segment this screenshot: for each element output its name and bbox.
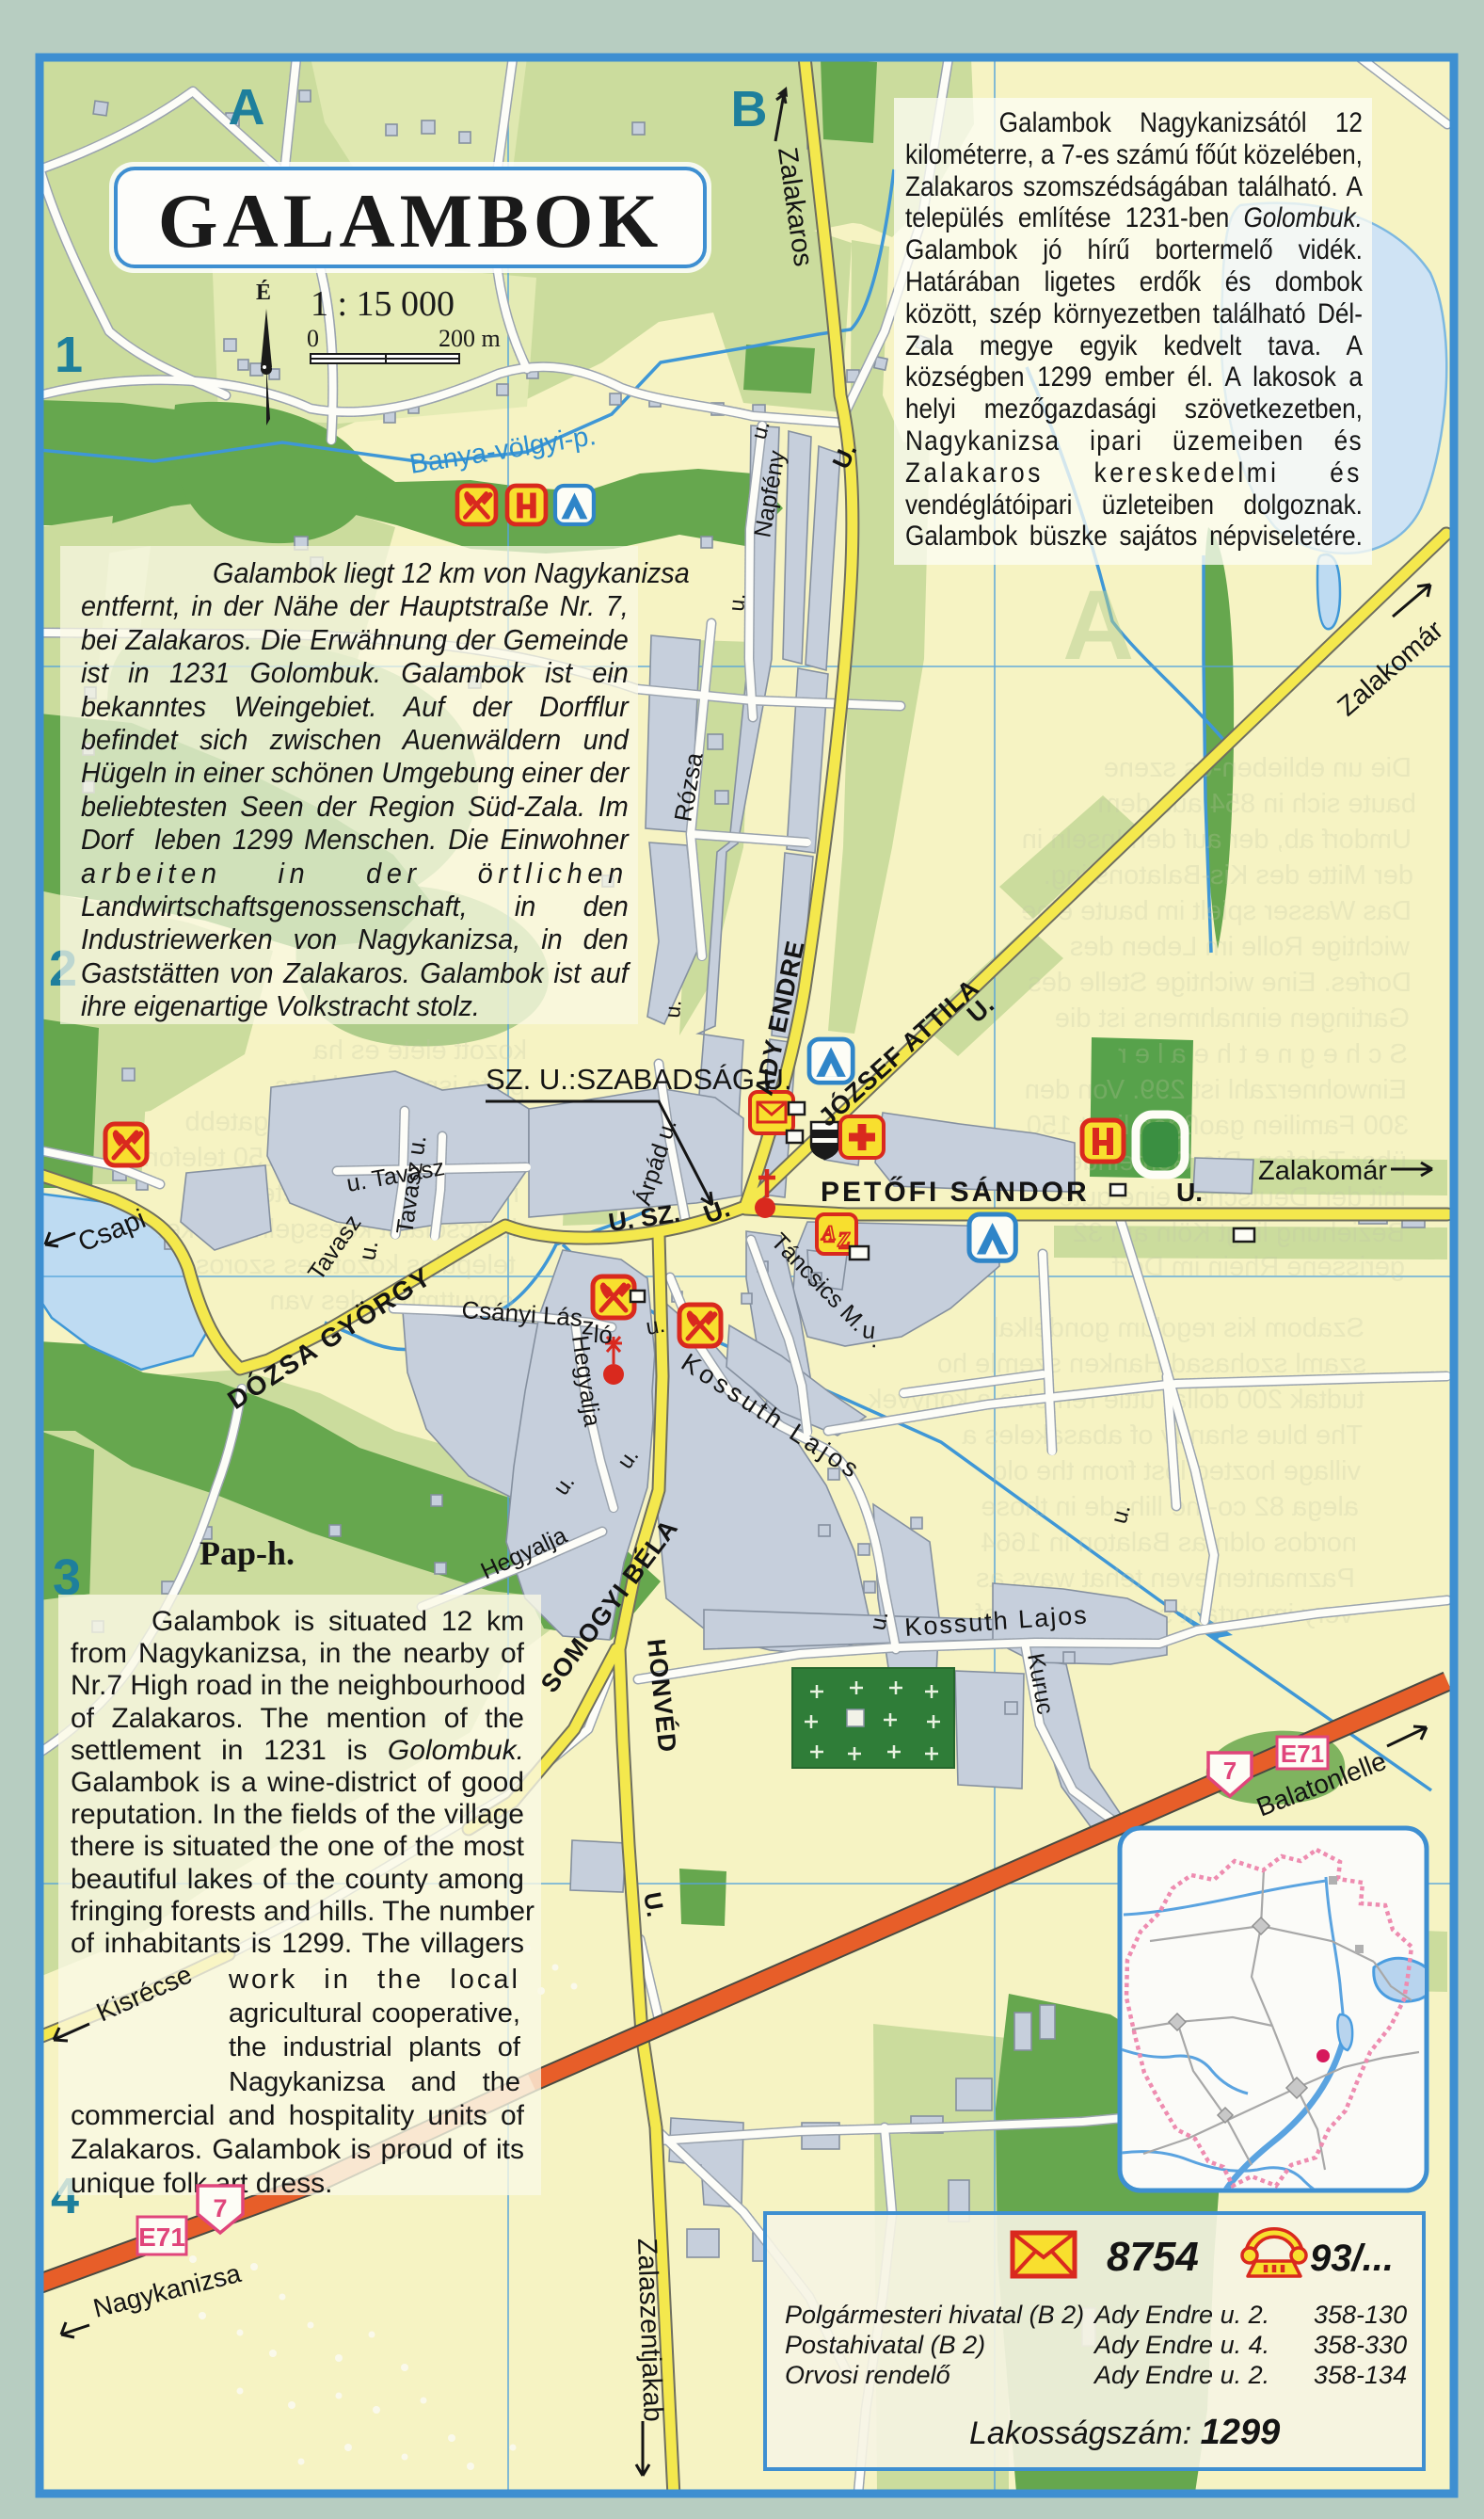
svg-text:7: 7 [1223, 1757, 1237, 1785]
svg-text:PETŐFI SÁNDOR: PETŐFI SÁNDOR [821, 1176, 1090, 1208]
svg-text:Umdorf ab, der auf den Inseln: Umdorf ab, der auf den Inseln in [1022, 825, 1412, 855]
svg-text:358-330: 358-330 [1314, 2331, 1407, 2359]
svg-text:0: 0 [307, 325, 319, 352]
svg-text:8754: 8754 [1107, 2234, 1199, 2280]
svg-text:Ady Endre u. 2.: Ady Endre u. 2. [1093, 2361, 1269, 2389]
svg-text:kozott elete es ha: kozott elete es ha [312, 1035, 527, 1066]
svg-text:u.: u. [660, 999, 686, 1019]
svg-text:1 : 15 000: 1 : 15 000 [311, 284, 455, 324]
svg-text:Dorfes. Eine wichtige Stelle d: Dorfes. Eine wichtige Stelle des [1028, 968, 1412, 998]
svg-text:358-134: 358-134 [1314, 2361, 1407, 2389]
svg-text:The blue shandy of abasakeles: The blue shandy of abasakeles a [962, 1420, 1363, 1451]
svg-text:A: A [1062, 570, 1134, 681]
svg-text:Zalakomár: Zalakomár [1258, 1156, 1387, 1186]
svg-text:358-130: 358-130 [1314, 2301, 1407, 2329]
svg-text:Pap-h.: Pap-h. [199, 1534, 295, 1572]
svg-text:S c h e g n e t h e a l e r: S c h e g n e t h e a l e r [1118, 1039, 1408, 1069]
svg-text:Die un eblieben-ös szene: Die un eblieben-ös szene [1104, 753, 1412, 783]
svg-text:GALAMBOK: GALAMBOK [158, 178, 663, 264]
svg-text:Ady Endre u. 4.: Ady Endre u. 4. [1093, 2331, 1269, 2359]
svg-text:U.: U. [638, 1890, 670, 1919]
svg-text:B: B [731, 81, 768, 137]
svg-text:Postahivatal (B 2): Postahivatal (B 2) [785, 2331, 985, 2359]
svg-text:1: 1 [55, 327, 83, 383]
svg-text:Gartingen einnahmens ist die: Gartingen einnahmens ist die [1055, 1003, 1410, 1034]
svg-text:alega 82 co-the llihade in tho: alega 82 co-the llihade in those [981, 1492, 1359, 1522]
svg-text:gerissene Rhein im Dorf: gerissene Rhein im Dorf [1111, 1252, 1405, 1282]
svg-text:É: É [256, 281, 271, 305]
svg-text:Ady Endre u. 2.: Ady Endre u. 2. [1093, 2301, 1269, 2329]
svg-text:u.: u. [724, 592, 750, 612]
svg-text:Zalaszentjakab: Zalaszentjakab [631, 2238, 668, 2422]
svg-text:93/...: 93/... [1310, 2238, 1394, 2279]
svg-text:Lakosságszám: 1299: Lakosságszám: 1299 [969, 2413, 1280, 2452]
svg-text:szaml szohasad Hanken szemle h: szaml szohasad Hanken szemle ho [937, 1349, 1366, 1379]
svg-text:Orvosi rendelő: Orvosi rendelő [785, 2361, 951, 2389]
svg-text:SZ. U.:SZABADSÁG U.: SZ. U.:SZABADSÁG U. [486, 1063, 792, 1096]
svg-text:nordos oldmas Balaton in 1664: nordos oldmas Balaton in 1664 [981, 1528, 1357, 1558]
svg-text:E71: E71 [1281, 1740, 1324, 1768]
svg-text:A: A [229, 79, 265, 136]
svg-text:Das Wasser spielt im baute ein: Das Wasser spielt im baute eine [1021, 896, 1412, 926]
svg-text:Polgármesteri hivatal (B 2): Polgármesteri hivatal (B 2) [785, 2301, 1084, 2329]
svg-text:wichtige Rolle im Leben des: wichtige Rolle im Leben des [1070, 932, 1411, 962]
svg-text:Einwohnerzahl ist 299. Von den: Einwohnerzahl ist 299. Von den [1025, 1075, 1407, 1105]
svg-text:U.: U. [1176, 1178, 1203, 1207]
svg-text:200 m: 200 m [439, 325, 501, 352]
